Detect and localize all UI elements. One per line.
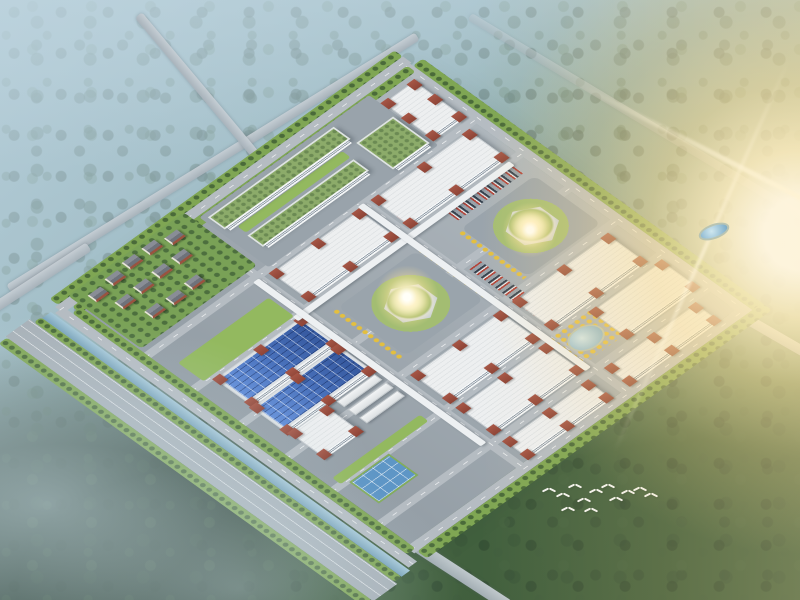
flying-bird xyxy=(578,497,590,503)
flying-bird xyxy=(634,486,646,492)
flying-bird xyxy=(585,507,597,513)
reservoir-east xyxy=(696,219,731,244)
flying-bird xyxy=(543,487,555,493)
flying-bird xyxy=(569,483,581,489)
flying-bird xyxy=(590,488,602,494)
flying-bird xyxy=(645,492,657,498)
flying-bird xyxy=(557,492,569,498)
aerial-industrial-park-rendering xyxy=(0,0,800,600)
brick-tower xyxy=(316,448,332,460)
flying-bird xyxy=(622,489,634,495)
brick-tower xyxy=(320,395,336,407)
industrial-campus-plane xyxy=(85,76,736,544)
flying-bird xyxy=(602,483,614,489)
brick-tower xyxy=(348,426,364,438)
flying-bird xyxy=(562,506,574,512)
flying-bird xyxy=(610,496,622,502)
